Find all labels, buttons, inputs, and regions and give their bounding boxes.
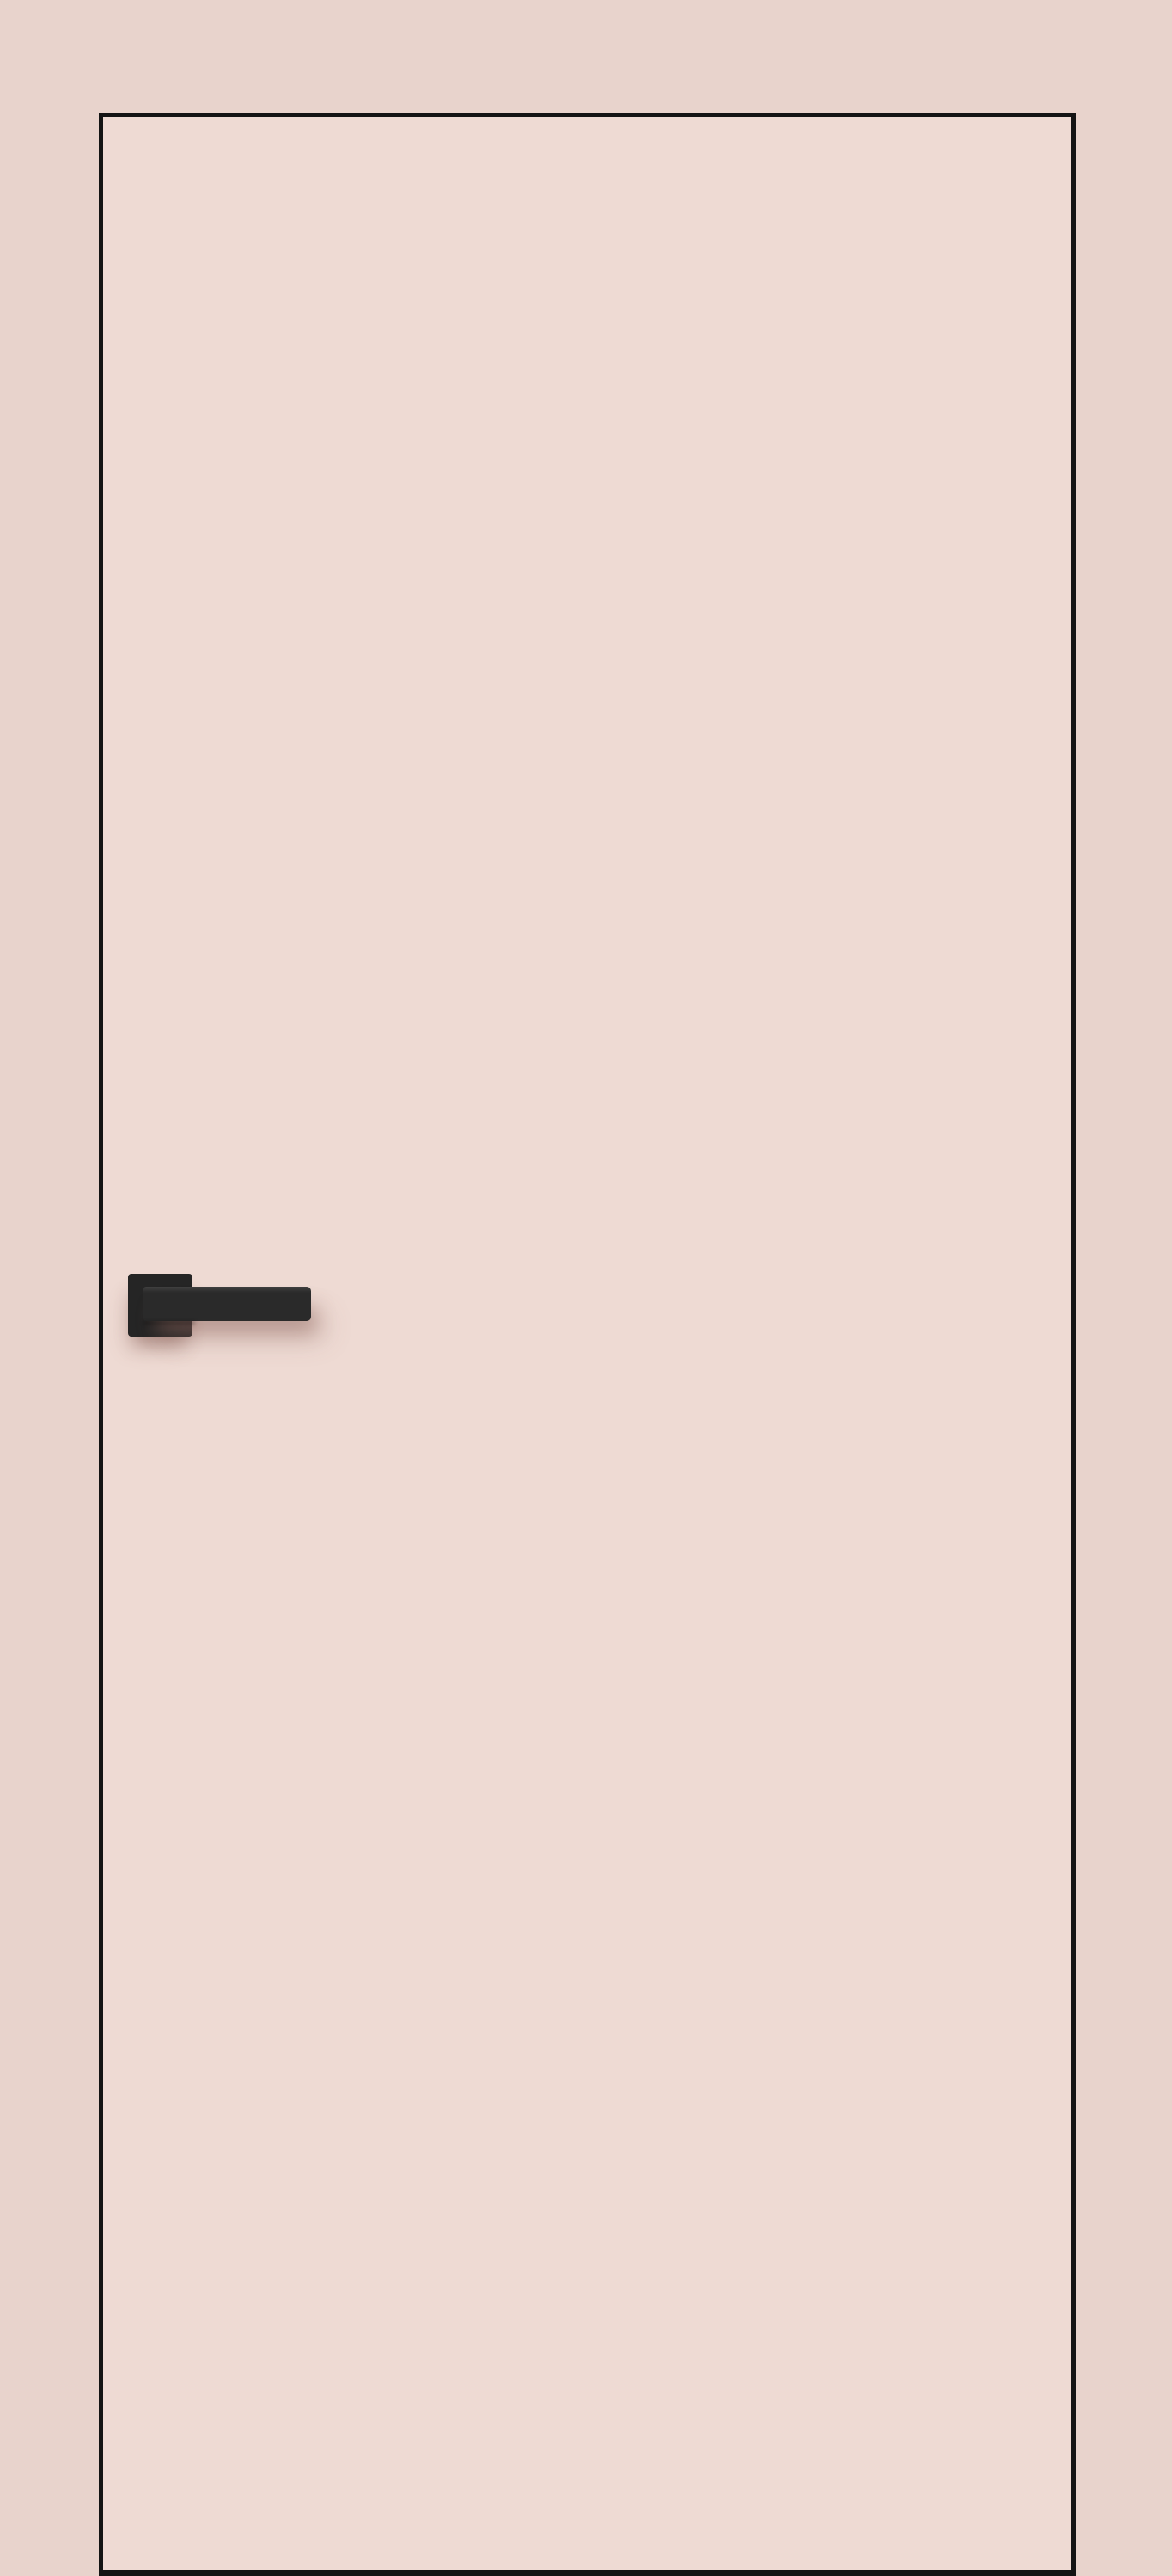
door-product-photo xyxy=(0,0,1172,2576)
door-panel xyxy=(99,113,1076,2576)
door-handle-lever xyxy=(143,1287,311,1321)
